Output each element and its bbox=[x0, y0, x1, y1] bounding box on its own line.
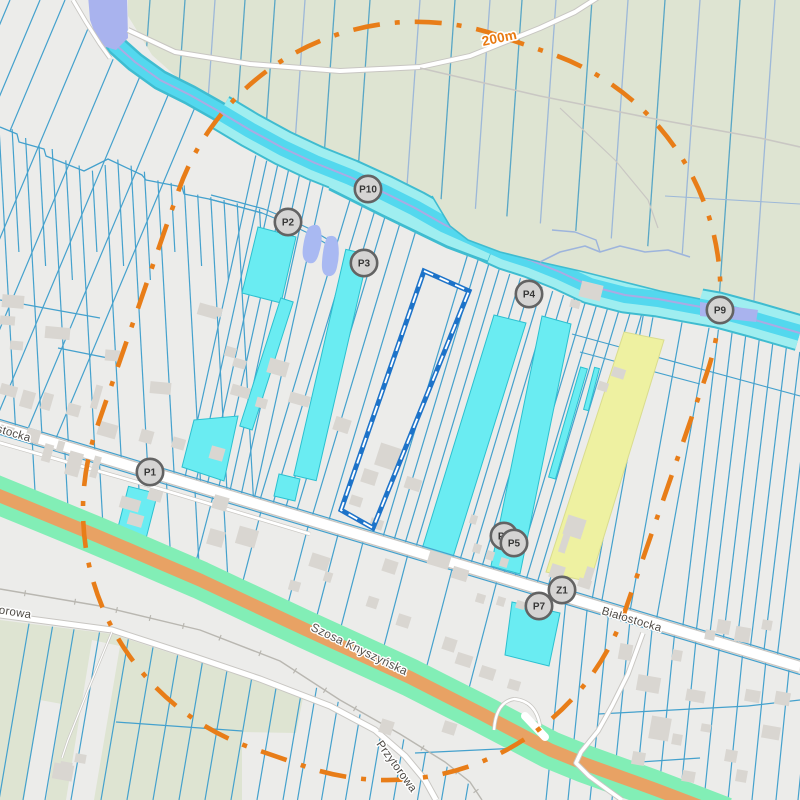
svg-text:Z1: Z1 bbox=[556, 586, 568, 597]
svg-text:P9: P9 bbox=[714, 306, 727, 317]
svg-text:P2: P2 bbox=[282, 218, 295, 229]
svg-text:P1: P1 bbox=[144, 468, 157, 479]
svg-text:P3: P3 bbox=[358, 259, 371, 270]
svg-text:P5: P5 bbox=[508, 539, 521, 550]
svg-text:P7: P7 bbox=[533, 602, 546, 613]
svg-text:P4: P4 bbox=[523, 290, 536, 301]
svg-text:P10: P10 bbox=[359, 185, 377, 196]
